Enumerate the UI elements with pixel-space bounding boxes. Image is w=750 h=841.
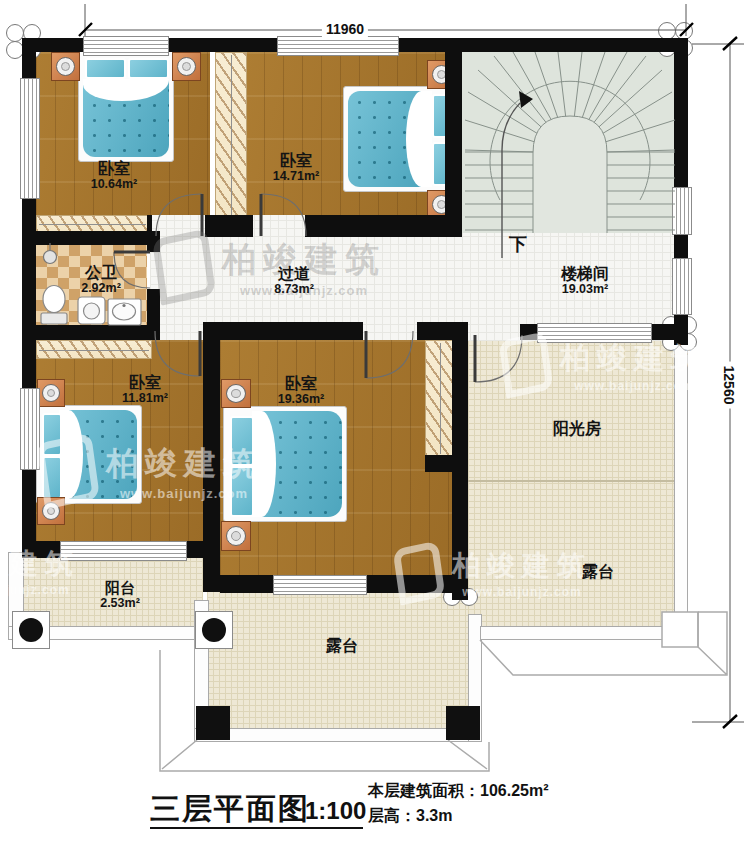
window (672, 187, 692, 235)
room-label-bedroom-top-left: 卧室 10.64m² (91, 160, 138, 191)
nightstand (37, 379, 65, 407)
stairwell-floor (462, 52, 674, 233)
round-column (195, 611, 233, 649)
closet-strip (36, 340, 152, 359)
wall (147, 289, 160, 325)
closet-strip (215, 52, 247, 235)
window (672, 258, 692, 315)
window (60, 541, 187, 561)
window (20, 78, 40, 199)
square-column (196, 706, 230, 740)
window (273, 575, 367, 595)
nightstand (37, 497, 65, 525)
wall (305, 215, 462, 237)
dimension-right: 12560 (721, 362, 737, 409)
wall (520, 324, 537, 340)
room-label-bedroom-bottom-middle: 卧室 19.36m² (278, 375, 325, 406)
dimension-top: 11960 (322, 21, 368, 37)
wall (205, 215, 253, 237)
round-column (12, 611, 50, 649)
bed (223, 406, 347, 522)
stair-direction-label: 下 (509, 235, 527, 255)
wall (220, 322, 363, 340)
nightstand (51, 52, 80, 81)
railing (194, 728, 482, 742)
closet-rail (39, 224, 146, 225)
plan-stats: 本层建筑面积：106.25m² 层高：3.3m (368, 779, 549, 829)
nightstand (172, 52, 201, 81)
bed (343, 86, 457, 192)
sunroom-terrace-floor (468, 341, 674, 628)
wall (425, 455, 468, 472)
room-label-bedroom-top-middle: 卧室 14.71m² (273, 152, 320, 183)
wall (674, 233, 688, 258)
wall (220, 575, 273, 593)
room-label-hallway: 过道 8.73m² (274, 265, 314, 296)
wardrobe (425, 340, 454, 457)
room-label-bedroom-bottom-left: 卧室 11.81m² (122, 374, 168, 405)
wall (185, 541, 220, 558)
closet-rail (440, 343, 441, 454)
square-column (446, 706, 480, 740)
wall (650, 324, 674, 340)
room-label-stairwell: 楼梯间 19.03m² (561, 265, 609, 296)
window (537, 323, 652, 343)
wall (674, 313, 688, 345)
wall (365, 575, 468, 593)
railing (480, 626, 676, 640)
closet-rail (231, 55, 232, 232)
wall (22, 325, 160, 340)
title-underline (150, 827, 363, 829)
room-label-balcony: 阳台 2.53m² (100, 580, 140, 610)
window (83, 36, 169, 56)
room-label-terrace-bottom: 露台 (326, 637, 358, 655)
nightstand (221, 521, 251, 551)
room-label-bathroom: 公卫 2.92m² (81, 264, 121, 295)
sunroom-terrace-divider (468, 480, 674, 482)
window (20, 388, 40, 470)
floor-height-stat: 层高：3.3m (368, 804, 549, 829)
floor-plan: 柏竣建筑 www.baijunjz.com 柏竣建筑 www.baijunjz.… (0, 0, 750, 841)
railing (674, 345, 688, 640)
wall (22, 231, 160, 245)
nightstand (221, 379, 251, 408)
floor-area-stat: 本层建筑面积：106.25m² (368, 779, 549, 804)
bed (36, 405, 142, 504)
room-label-terrace-right: 露台 (582, 563, 614, 581)
terrace-bottom-floor (207, 592, 468, 730)
bed (78, 50, 174, 162)
plan-scale: 1:100 (305, 797, 366, 825)
wall (22, 541, 60, 558)
room-label-sunroom: 阳光房 (553, 420, 601, 438)
window (277, 36, 399, 56)
wall (147, 245, 160, 252)
wall (674, 38, 688, 187)
closet-rail (39, 350, 149, 351)
wall (445, 52, 462, 233)
plan-title: 三层平面图 (150, 789, 310, 830)
